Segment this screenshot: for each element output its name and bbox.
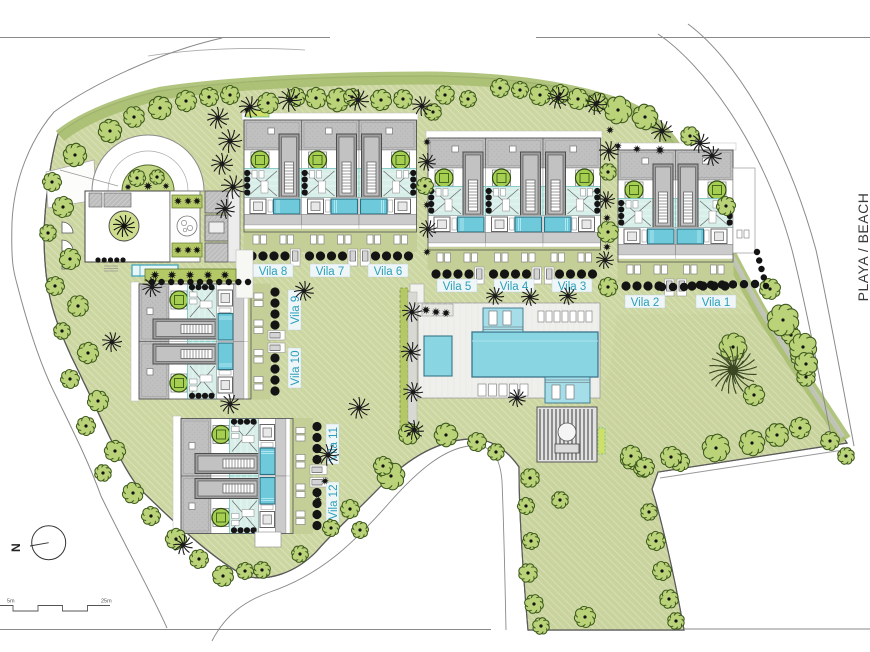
svg-text:Vila 6: Vila 6 xyxy=(374,266,403,278)
svg-text:Vila 7: Vila 7 xyxy=(316,266,345,278)
svg-text:Vila 10: Vila 10 xyxy=(290,351,302,386)
svg-text:Vila 1: Vila 1 xyxy=(702,297,731,309)
svg-text:Vila 2: Vila 2 xyxy=(631,297,660,309)
svg-text:PLAYA / BEACH: PLAYA / BEACH xyxy=(855,193,870,302)
svg-text:N: N xyxy=(9,543,23,552)
svg-text:5m: 5m xyxy=(7,599,15,605)
svg-text:25m: 25m xyxy=(101,599,112,605)
svg-text:Vila 8: Vila 8 xyxy=(259,266,288,278)
svg-text:Vila 5: Vila 5 xyxy=(443,281,472,293)
svg-text:Vila 12: Vila 12 xyxy=(328,485,340,520)
svg-text:Vila 4: Vila 4 xyxy=(500,281,529,293)
